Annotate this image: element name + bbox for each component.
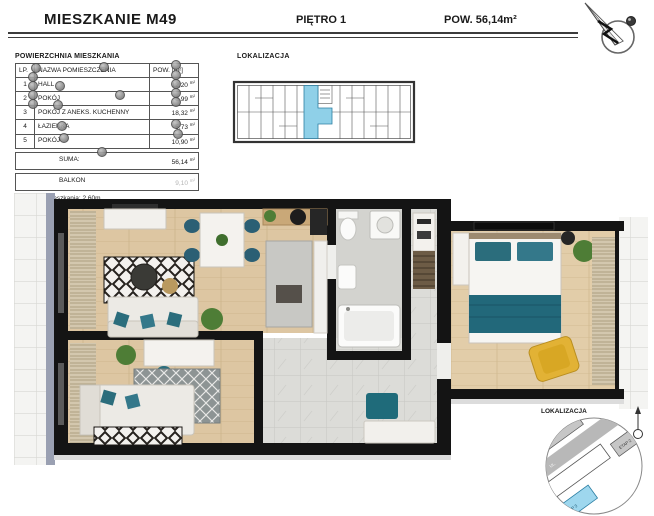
sum-row: SUMA: 56,14 m² [15, 152, 199, 170]
col-name: NAZWA POMIESZCZENIA [35, 64, 150, 78]
artifact-dot [28, 99, 38, 109]
table-plant [216, 234, 228, 246]
curtains-bedroom [592, 237, 615, 385]
total-area-label: POW. 56,14m² [444, 14, 517, 26]
hall-rug [366, 393, 398, 419]
sofa [108, 297, 198, 337]
building-plan-label: LOKALIZACJA [237, 53, 290, 60]
bathtub-inner [344, 311, 394, 341]
north-arrow-icon [578, 0, 654, 60]
floor-label: PIĘTRO 1 [296, 14, 346, 26]
toilet [340, 218, 356, 240]
plant [573, 240, 595, 262]
bedroom-door [437, 343, 451, 379]
curtains-living [70, 211, 96, 329]
ceiling-panels [474, 222, 554, 230]
area-table: POWIERZCHNIA MIESZKANIA LP. NAZWA POMIES… [15, 53, 199, 202]
side-table [561, 231, 575, 245]
artifact-dot [97, 147, 107, 157]
bedroom-wardrobe [453, 233, 470, 285]
desk [144, 340, 214, 366]
site-map: LOKALIZACJA UL. ETAP 2 ETAP 3 [532, 402, 654, 516]
wardrobe-decor [417, 219, 431, 224]
artifact-dot [99, 62, 109, 72]
north-arrow-small-icon [634, 406, 643, 439]
artifact-dot [171, 119, 181, 129]
runner-rug [94, 427, 182, 445]
slat-wall [413, 251, 435, 289]
table-row: 3 POKÓJ Z ANEKS. KUCHENNY 18,32 m² [16, 106, 199, 120]
apartment-title: MIESZKANIE M49 [44, 11, 177, 28]
artifact-dot [59, 133, 69, 143]
shadow-bottom [54, 455, 451, 460]
tv-cabinet [104, 209, 166, 229]
site-map-label: LOKALIZACJA [541, 408, 587, 415]
balcony-row: BALKON 9,10 m² [15, 173, 199, 191]
artifact-dot [173, 129, 183, 139]
kitchen-counter-side [314, 241, 327, 333]
cooker-hood [290, 209, 306, 225]
window-left-living [58, 233, 64, 313]
fridge [310, 209, 327, 235]
artifact-dot [53, 100, 63, 110]
faucet [346, 307, 350, 311]
island-sink [276, 285, 302, 303]
sink [338, 265, 356, 289]
artifact-dot [171, 60, 181, 70]
coffee-table [131, 264, 157, 290]
floor-plan-sheet: MIESZKANIE M49 PIĘTRO 1 POW. 56,14m² POW… [0, 0, 654, 516]
header-divider [8, 32, 578, 38]
plant [201, 308, 223, 330]
artifact-dot [55, 81, 65, 91]
bed [469, 233, 561, 343]
building-storey-plan [230, 66, 420, 158]
artifact-dot [57, 121, 67, 131]
artifact-dot [171, 97, 181, 107]
pouf [162, 278, 178, 294]
artifact-dot [115, 90, 125, 100]
area-table-title: POWIERZCHNIA MIESZKANIA [15, 53, 199, 60]
kitchen-plant [264, 210, 276, 222]
kitchen-island [266, 241, 312, 327]
wardrobe-decor [417, 231, 431, 239]
table-row: 5 POKÓJ 10,90 m² [16, 134, 199, 148]
hall-bench [364, 421, 435, 443]
facade-strip-left [46, 193, 55, 465]
plant [116, 345, 136, 365]
balcony-tiles-right [619, 217, 648, 409]
window-left-room [58, 363, 64, 425]
bathroom-door [327, 245, 336, 279]
